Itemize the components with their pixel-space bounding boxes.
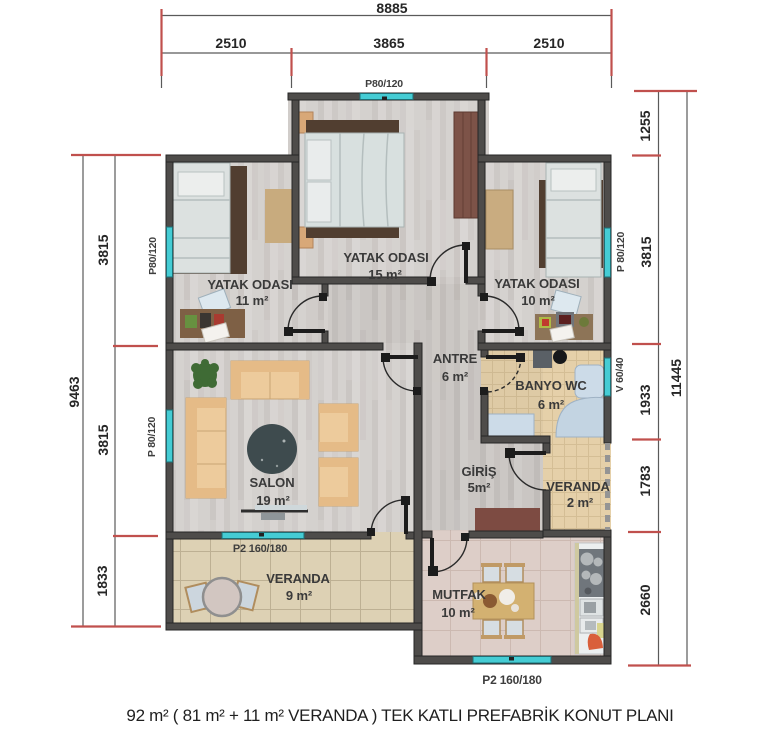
svg-text:P 80/120: P 80/120 [615,232,627,273]
svg-text:10 m²: 10 m² [521,293,555,308]
svg-text:2 m²: 2 m² [567,495,594,510]
svg-text:3865: 3865 [373,35,404,51]
svg-text:P80/120: P80/120 [365,78,403,90]
svg-text:11 m²: 11 m² [236,293,270,308]
svg-text:YATAK ODASI: YATAK ODASI [343,250,428,265]
svg-text:3815: 3815 [638,236,654,267]
svg-text:6 m²: 6 m² [538,397,565,412]
svg-text:SALON: SALON [249,475,294,490]
svg-text:19 m²: 19 m² [256,493,290,508]
svg-text:15 m²: 15 m² [368,267,402,282]
svg-text:3815: 3815 [95,424,111,455]
svg-text:P2 160/180: P2 160/180 [233,543,287,555]
svg-text:9463: 9463 [66,376,82,407]
svg-text:1783: 1783 [637,465,653,496]
svg-text:1933: 1933 [637,384,653,415]
svg-text:2510: 2510 [215,35,246,51]
svg-text:6 m²: 6 m² [442,369,469,384]
svg-text:3815: 3815 [95,234,111,265]
svg-text:BANYO WC: BANYO WC [515,378,587,393]
svg-text:P2 160/180: P2 160/180 [482,673,542,687]
svg-text:11445: 11445 [668,359,684,397]
svg-text:GİRİŞ: GİRİŞ [462,464,497,479]
svg-text:YATAK ODASI: YATAK ODASI [207,277,292,292]
svg-text:P80/120: P80/120 [147,237,159,275]
svg-text:MUTFAK: MUTFAK [432,587,486,602]
svg-text:V 60/40: V 60/40 [614,357,626,392]
svg-text:9 m²: 9 m² [286,588,313,603]
svg-text:2510: 2510 [533,35,564,51]
svg-text:92 m² ( 81 m² + 11 m² VERANDA: 92 m² ( 81 m² + 11 m² VERANDA ) TEK KATL… [126,706,673,725]
svg-text:1255: 1255 [637,110,653,141]
svg-text:1833: 1833 [94,565,110,596]
svg-text:YATAK ODASI: YATAK ODASI [494,276,579,291]
svg-text:VERANDA: VERANDA [266,571,330,586]
svg-text:ANTRE: ANTRE [433,351,478,366]
svg-text:2660: 2660 [637,584,653,615]
svg-text:8885: 8885 [376,0,407,16]
svg-text:5m²: 5m² [468,480,492,495]
svg-text:10 m²: 10 m² [441,605,475,620]
svg-text:VERANDA: VERANDA [546,479,610,494]
svg-text:P 80/120: P 80/120 [146,417,158,458]
